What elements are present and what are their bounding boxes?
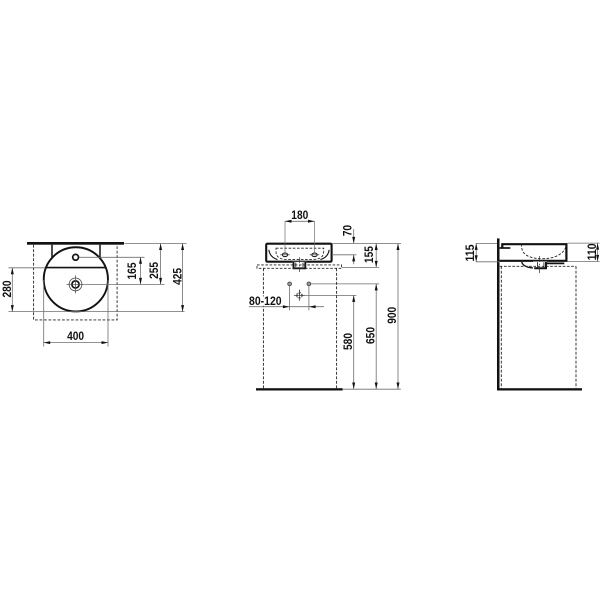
svg-text:255: 255 — [147, 262, 161, 279]
svg-text:900: 900 — [385, 307, 399, 324]
svg-text:165: 165 — [125, 262, 139, 279]
svg-text:155: 155 — [362, 246, 376, 263]
svg-text:425: 425 — [170, 268, 184, 285]
svg-text:400: 400 — [67, 329, 84, 343]
svg-text:280: 280 — [0, 280, 14, 297]
svg-text:580: 580 — [341, 333, 355, 350]
svg-text:115: 115 — [463, 244, 477, 261]
svg-text:110: 110 — [585, 243, 599, 260]
svg-text:80-120: 80-120 — [249, 294, 282, 308]
svg-text:650: 650 — [363, 327, 377, 344]
svg-text:180: 180 — [291, 208, 308, 222]
svg-text:70: 70 — [340, 225, 354, 237]
